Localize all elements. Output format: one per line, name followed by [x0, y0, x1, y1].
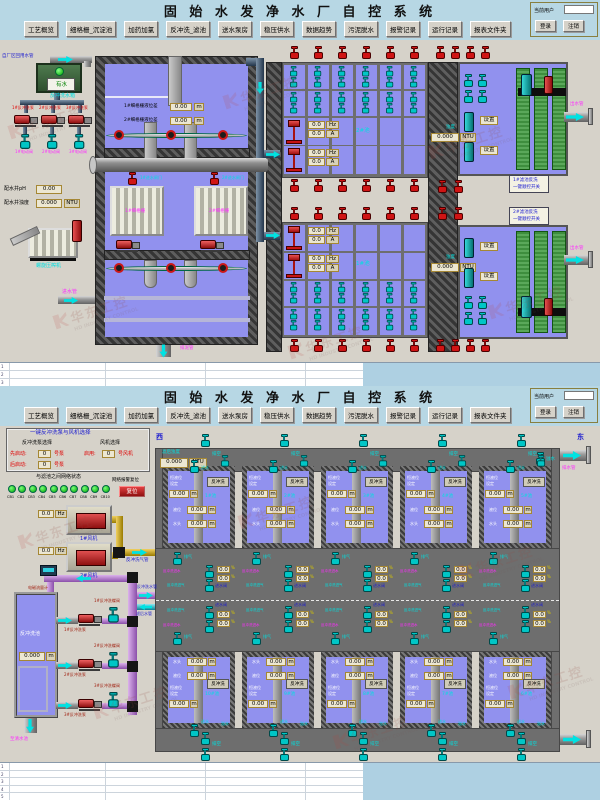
valve-icon[interactable] [386, 309, 393, 319]
valve-icon[interactable] [201, 434, 210, 447]
motor-valve-icon[interactable] [362, 179, 371, 192]
setting-button[interactable]: 设置 [480, 242, 498, 251]
valve-icon[interactable] [280, 434, 289, 447]
first-pump-select[interactable]: 0 [38, 450, 51, 458]
valve-icon[interactable] [363, 620, 372, 633]
valve-icon[interactable] [290, 92, 297, 102]
valve-icon[interactable] [314, 282, 321, 292]
pipe-valve-icon[interactable] [114, 263, 124, 273]
motor-valve-icon[interactable] [410, 339, 419, 352]
inlet-valve-icon[interactable] [427, 724, 436, 737]
valve-icon[interactable] [290, 66, 297, 76]
valve-icon[interactable] [410, 552, 419, 565]
pump-icon[interactable] [544, 76, 553, 94]
valve-icon[interactable] [362, 282, 369, 292]
mixer-icon[interactable] [286, 148, 302, 174]
valve-icon[interactable] [386, 77, 393, 87]
menu-数据趋势[interactable]: 数据趋势 [302, 21, 336, 37]
motor-valve-icon[interactable] [338, 46, 347, 59]
valve-icon[interactable] [290, 103, 297, 113]
mixer-icon[interactable] [286, 254, 302, 280]
screw-motor [72, 220, 82, 242]
const-level-setpoint[interactable]: 0.00 [406, 490, 426, 498]
pipe-valve-icon[interactable] [114, 130, 124, 140]
inlet-valve-label: 进水阀 [294, 584, 306, 589]
motor-valve-icon[interactable] [362, 46, 371, 59]
bw-pump-icon[interactable] [78, 656, 102, 671]
const-level-setpoint[interactable]: 0.00 [248, 700, 268, 708]
valve-icon[interactable] [489, 552, 498, 565]
valve-icon[interactable] [363, 579, 372, 592]
motor-valve-icon[interactable] [436, 339, 445, 352]
motor-valve-icon[interactable] [436, 46, 445, 59]
fan-select[interactable]: 0 [102, 450, 115, 458]
spreadsheet[interactable]: 123 [0, 362, 600, 386]
menu-送水泵房[interactable]: 送水泵房 [218, 407, 252, 423]
menu-加药加氯[interactable]: 加药加氯 [124, 407, 158, 423]
valve-icon[interactable] [442, 579, 451, 592]
motor-valve-icon[interactable] [481, 339, 490, 352]
label: 号泵 [54, 452, 64, 458]
pipe-valve-icon[interactable] [166, 130, 176, 140]
login-button[interactable]: 登录 [535, 20, 556, 32]
motor-valve-icon[interactable] [362, 339, 371, 352]
valve-icon[interactable] [173, 552, 182, 565]
inlet-valve-icon[interactable] [269, 724, 278, 737]
valve-icon[interactable] [362, 103, 369, 113]
valve-icon[interactable] [363, 606, 372, 619]
header-1: 固 始 水 发 净 水 厂 自 控 系 统 工艺概览细格栅_沉淀池加药加氯反冲洗… [0, 0, 600, 40]
valve-icon[interactable] [489, 632, 498, 645]
valve-icon[interactable] [458, 455, 466, 467]
cell-divider [352, 657, 361, 723]
valve-icon[interactable] [314, 92, 321, 102]
motor-valve-icon[interactable] [466, 339, 475, 352]
empty-valve-label: 排空 [528, 742, 537, 747]
valve-icon[interactable] [359, 748, 368, 761]
motor-valve-icon[interactable] [338, 179, 347, 192]
const-level-setpoint[interactable]: 0.00 [169, 490, 189, 498]
valve-open-pct: 0.0 [454, 566, 467, 573]
pipe-valve-icon[interactable] [218, 130, 228, 140]
inlet-label: 进水 [438, 466, 446, 471]
valve-icon[interactable] [284, 606, 293, 619]
motor-valve-icon[interactable] [290, 179, 299, 192]
menu-工艺概览[interactable]: 工艺概览 [24, 21, 58, 37]
valve-icon[interactable] [201, 748, 210, 761]
backwash-button[interactable]: 反冲洗 [286, 679, 308, 689]
butterfly-valve-label: 1#反冲洗蝶阀 [94, 599, 120, 604]
valve-icon[interactable] [290, 320, 297, 330]
menu-细格栅_沉淀池[interactable]: 细格栅_沉淀池 [66, 21, 116, 37]
valve-icon[interactable] [521, 565, 530, 578]
valve-icon[interactable] [359, 732, 368, 745]
backwash-button[interactable]: 反冲洗 [207, 679, 229, 689]
pump-icon[interactable] [521, 296, 532, 318]
motor-valve-icon[interactable] [290, 339, 299, 352]
motor-valve-icon[interactable] [454, 207, 463, 220]
cell-label: 10#池 [205, 692, 219, 697]
unit-label: m [506, 700, 514, 708]
valve-icon[interactable] [314, 293, 321, 303]
inlet-valve-icon[interactable] [269, 460, 278, 473]
motor-valve-icon[interactable] [290, 46, 299, 59]
page-title: 固 始 水 发 净 水 厂 自 控 系 统 [0, 387, 600, 406]
screen1-level-label: 1#细格栅液位差 [124, 104, 158, 109]
valve-icon[interactable] [410, 320, 417, 330]
valve-icon[interactable] [410, 282, 417, 292]
valve-icon[interactable] [379, 455, 387, 467]
motor-valve-icon[interactable] [314, 339, 323, 352]
unit-label: m [366, 506, 374, 514]
pipe [47, 582, 54, 592]
valve-icon[interactable] [438, 732, 447, 745]
inlet-valve-icon[interactable] [506, 460, 515, 473]
valve-icon[interactable] [410, 77, 417, 87]
valve-icon[interactable] [290, 77, 297, 87]
valve-icon[interactable] [331, 632, 340, 645]
menu-报表文件夹[interactable]: 报表文件夹 [470, 21, 511, 37]
valve-icon[interactable] [386, 293, 393, 303]
menu-反冲洗_滤池[interactable]: 反冲洗_滤池 [166, 21, 210, 37]
turbidity-value: 0.000 [431, 133, 459, 142]
valve-icon[interactable] [478, 90, 487, 103]
butterfly-valve-icon[interactable] [108, 652, 119, 668]
valve-icon[interactable] [464, 90, 473, 103]
valve-icon[interactable] [464, 296, 473, 309]
valve-icon[interactable] [252, 552, 261, 565]
valve-icon[interactable] [521, 579, 530, 592]
current-user-input[interactable] [564, 391, 594, 400]
butterfly-valve-icon[interactable] [108, 607, 119, 623]
pillar [144, 260, 157, 288]
valve-icon[interactable] [410, 293, 417, 303]
pump-icon[interactable] [464, 268, 474, 288]
mixer-icon[interactable] [286, 226, 302, 252]
backwash-button[interactable]: 反冲洗 [523, 679, 545, 689]
valve-icon[interactable] [386, 282, 393, 292]
valve-icon[interactable] [464, 312, 473, 325]
valve-icon[interactable] [284, 620, 293, 633]
light-label: CB3 [28, 495, 35, 499]
motor-valve-icon[interactable] [314, 179, 323, 192]
setting-button[interactable]: 设置 [480, 146, 498, 155]
valve-icon[interactable] [221, 455, 229, 467]
valve-icon[interactable] [290, 309, 297, 319]
motor-valve-icon[interactable] [454, 180, 463, 193]
menu-运行记录[interactable]: 运行记录 [428, 407, 462, 423]
valve-icon[interactable] [537, 455, 545, 467]
valve-icon[interactable] [205, 565, 214, 578]
label: 恒液位 [249, 476, 261, 481]
valve-icon[interactable] [338, 66, 345, 76]
main-pipe [92, 158, 268, 172]
const-level-setpoint[interactable]: 0.00 [169, 700, 189, 708]
valve-icon[interactable] [521, 620, 530, 633]
valve-icon[interactable] [201, 732, 210, 745]
pillar [168, 56, 182, 106]
valve-icon[interactable] [362, 92, 369, 102]
menu-运行记录[interactable]: 运行记录 [428, 21, 462, 37]
pipe-valve-icon[interactable] [218, 263, 228, 273]
pump-icon[interactable] [200, 237, 224, 252]
motor-valve-icon[interactable] [338, 339, 347, 352]
valve-icon[interactable] [517, 748, 526, 761]
valve-icon[interactable] [331, 552, 340, 565]
valve-icon[interactable] [314, 320, 321, 330]
inlet-valve-icon[interactable] [506, 724, 515, 737]
motor-valve-icon[interactable] [451, 339, 460, 352]
pipe [50, 127, 54, 134]
const-level-setpoint[interactable]: 0.00 [485, 490, 505, 498]
row-number: 2 [1, 372, 9, 377]
valve-icon[interactable] [517, 434, 526, 447]
light-label: CB4 [38, 495, 45, 499]
valve-icon[interactable] [290, 293, 297, 303]
valve-icon[interactable] [338, 293, 345, 303]
valve-icon[interactable] [363, 565, 372, 578]
pump-icon[interactable] [116, 237, 140, 252]
bw-pump-icon[interactable] [78, 611, 102, 626]
valve-icon[interactable] [410, 92, 417, 102]
motor-valve-icon[interactable] [386, 207, 395, 220]
motor-valve-icon[interactable] [386, 46, 395, 59]
valve-icon[interactable] [314, 66, 321, 76]
motor-valve-icon[interactable] [314, 46, 323, 59]
const-level-setpoint[interactable]: 0.00 [485, 700, 505, 708]
valve-icon[interactable] [478, 312, 487, 325]
valve-icon[interactable] [438, 748, 447, 761]
cell-divider [510, 657, 519, 723]
const-level-setpoint[interactable]: 0.00 [327, 700, 347, 708]
cell-divider [431, 657, 440, 723]
valve-icon[interactable] [284, 565, 293, 578]
valve-icon[interactable] [362, 309, 369, 319]
grid-wall [266, 62, 282, 352]
menu-污泥脱水[interactable]: 污泥脱水 [344, 407, 378, 423]
pump-icon[interactable] [464, 238, 474, 258]
pump-icon[interactable] [544, 298, 553, 316]
motor-valve-icon[interactable] [438, 207, 447, 220]
enable-label: 启用: [84, 452, 96, 458]
backwash-tank-label: 反冲洗池 [20, 632, 40, 638]
fan-hz: 0.0 [38, 510, 54, 518]
motor-valve-icon[interactable] [466, 46, 475, 59]
electric-valve-icon[interactable] [47, 134, 57, 149]
motor-valve-icon[interactable] [386, 179, 395, 192]
reset-button[interactable]: 复位 [119, 486, 145, 497]
motor-valve-icon[interactable] [410, 179, 419, 192]
valve-icon[interactable] [362, 77, 369, 87]
valve-icon[interactable] [410, 309, 417, 319]
label: 号泵 [54, 463, 64, 469]
valve-icon[interactable] [478, 296, 487, 309]
valve-icon[interactable] [205, 579, 214, 592]
label: % [310, 575, 314, 580]
menu-稳压供水[interactable]: 稳压供水 [260, 407, 294, 423]
head-value: 0.00 [503, 658, 523, 666]
backwash-pump-icon[interactable] [68, 112, 92, 127]
spreadsheet[interactable]: 12345 [0, 762, 600, 800]
menu-工艺概览[interactable]: 工艺概览 [24, 407, 58, 423]
later-pump-select[interactable]: 0 [38, 461, 51, 469]
backwash-pump-icon[interactable] [41, 112, 65, 127]
valve-icon[interactable] [290, 282, 297, 292]
butterfly-valve-icon[interactable] [108, 692, 119, 708]
valve-icon[interactable] [410, 103, 417, 113]
pipe-valve-icon[interactable] [166, 263, 176, 273]
motor-valve-icon[interactable] [438, 180, 447, 193]
valve-icon[interactable] [410, 66, 417, 76]
const-level-setpoint[interactable]: 0.00 [406, 700, 426, 708]
valve-icon[interactable] [386, 103, 393, 113]
valve-icon[interactable] [314, 77, 321, 87]
backwash-button[interactable]: 反冲洗 [365, 679, 387, 689]
menu-反冲洗_滤池[interactable]: 反冲洗_滤池 [166, 407, 210, 423]
inlet-valve-icon[interactable] [348, 460, 357, 473]
menu-报警记录[interactable]: 报警记录 [386, 407, 420, 423]
bw-in-water-label: 反冲洗进水 [242, 623, 260, 627]
valve-icon[interactable] [442, 620, 451, 633]
pump-icon[interactable] [521, 74, 532, 96]
label: 恒液位 [407, 686, 419, 691]
valve-icon[interactable] [300, 455, 308, 467]
valve-icon[interactable] [359, 434, 368, 447]
backwash-button[interactable]: 反冲洗 [207, 477, 229, 487]
inlet-label: 进水 [280, 720, 288, 725]
gate-valve-icon[interactable] [210, 172, 219, 185]
valve-icon[interactable] [362, 320, 369, 330]
label: 设定 [407, 482, 415, 487]
valve-icon[interactable] [362, 293, 369, 303]
menu-稳压供水[interactable]: 稳压供水 [260, 21, 294, 37]
cell-label: 4#池 [442, 494, 453, 499]
sequence-control-box[interactable]: 2#滤池反洗一键顺控开关 [509, 207, 549, 225]
valve-icon[interactable] [280, 748, 289, 761]
motor-valve-icon[interactable] [362, 207, 371, 220]
motor-valve-icon[interactable] [410, 207, 419, 220]
menu-加药加氯[interactable]: 加药加氯 [124, 21, 158, 37]
valve-icon[interactable] [438, 434, 447, 447]
label: 设定 [407, 692, 415, 697]
menu-报表文件夹[interactable]: 报表文件夹 [470, 407, 511, 423]
backwash-button[interactable]: 反冲洗 [444, 477, 466, 487]
valve-icon[interactable] [521, 606, 530, 619]
screw-base [30, 258, 76, 261]
current-user-input[interactable] [564, 5, 594, 14]
menu-数据趋势[interactable]: 数据趋势 [302, 407, 336, 423]
valve-icon[interactable] [442, 565, 451, 578]
valve-icon[interactable] [338, 103, 345, 113]
valve-icon[interactable] [386, 92, 393, 102]
motor-valve-icon[interactable] [386, 339, 395, 352]
motor-valve-icon[interactable] [451, 46, 460, 59]
valve-icon[interactable] [338, 320, 345, 330]
fine-screen: 1#细格栅 [110, 186, 164, 236]
motor-valve-icon[interactable] [410, 46, 419, 59]
motor-valve-icon[interactable] [290, 207, 299, 220]
bw-in-air-label: 反冲洗进气 [246, 583, 264, 587]
valve-icon[interactable] [280, 732, 289, 745]
menu-报警记录[interactable]: 报警记录 [386, 21, 420, 37]
electric-valve-icon[interactable] [74, 134, 84, 149]
valve-icon[interactable] [284, 579, 293, 592]
valve-icon[interactable] [252, 632, 261, 645]
inlet-valve-icon[interactable] [190, 724, 199, 737]
unit-label: m [524, 658, 532, 666]
overflow-label: 溢水 [300, 722, 308, 727]
menu-污泥脱水[interactable]: 污泥脱水 [344, 21, 378, 37]
backwash-button[interactable]: 反冲洗 [523, 477, 545, 487]
pump-icon[interactable] [464, 112, 474, 132]
valve-icon[interactable] [410, 632, 419, 645]
valve-icon[interactable] [173, 632, 182, 645]
backwash-button[interactable]: 反冲洗 [365, 477, 387, 487]
backwash-button[interactable]: 反冲洗 [286, 477, 308, 487]
valve-icon[interactable] [386, 66, 393, 76]
valve-icon[interactable] [442, 606, 451, 619]
motor-valve-icon[interactable] [314, 207, 323, 220]
setting-button[interactable]: 设置 [480, 272, 498, 281]
label: 水头 [173, 660, 181, 665]
valve-icon[interactable] [338, 282, 345, 292]
inlet-valve-icon[interactable] [427, 460, 436, 473]
valve-icon[interactable] [362, 66, 369, 76]
valve-icon[interactable] [464, 74, 473, 87]
backwash-button[interactable]: 反冲洗 [444, 679, 466, 689]
inlet-valve-icon[interactable] [190, 460, 199, 473]
valve-icon[interactable] [314, 103, 321, 113]
const-level-setpoint[interactable]: 0.00 [327, 490, 347, 498]
gate-valve-icon[interactable] [128, 172, 137, 185]
valve-icon[interactable] [205, 606, 214, 619]
mixer-icon[interactable] [286, 120, 302, 146]
unit-label: m [445, 520, 453, 528]
login-button[interactable]: 登录 [535, 406, 556, 418]
valve-icon[interactable] [314, 309, 321, 319]
menu-送水泵房[interactable]: 送水泵房 [218, 21, 252, 37]
gallery-divider [156, 600, 559, 601]
electric-valve-icon[interactable] [20, 134, 30, 149]
grid-line [105, 363, 106, 386]
logout-button[interactable]: 注销 [563, 20, 584, 32]
valve-icon[interactable] [338, 309, 345, 319]
motor-valve-icon[interactable] [338, 207, 347, 220]
mixer-hz: 0.0 [308, 255, 325, 263]
valve-icon[interactable] [386, 320, 393, 330]
unit-label: m [190, 700, 198, 708]
inlet-valve-icon[interactable] [348, 724, 357, 737]
valve-icon[interactable] [478, 74, 487, 87]
setting-button[interactable]: 设置 [480, 116, 498, 125]
inlet-label: 进水 [359, 466, 367, 471]
valve-icon[interactable] [338, 92, 345, 102]
fine-screen-label: 2#细格栅 [209, 209, 229, 214]
bw-pump-icon[interactable] [78, 696, 102, 711]
motor-valve-icon[interactable] [481, 46, 490, 59]
pump-icon[interactable] [464, 142, 474, 162]
valve-open-pct: 0.0 [296, 566, 309, 573]
logout-button[interactable]: 注销 [563, 406, 584, 418]
backwash-pump-icon[interactable] [14, 112, 38, 127]
valve-icon[interactable] [205, 620, 214, 633]
const-level-setpoint[interactable]: 0.00 [248, 490, 268, 498]
valve-icon[interactable] [517, 732, 526, 745]
valve-icon[interactable] [338, 77, 345, 87]
overflow-label: 溢水 [458, 722, 466, 727]
menu-细格栅_沉淀池[interactable]: 细格栅_沉淀池 [66, 407, 116, 423]
sequence-control-box[interactable]: 1#滤池反洗一键顺控开关 [509, 175, 549, 193]
